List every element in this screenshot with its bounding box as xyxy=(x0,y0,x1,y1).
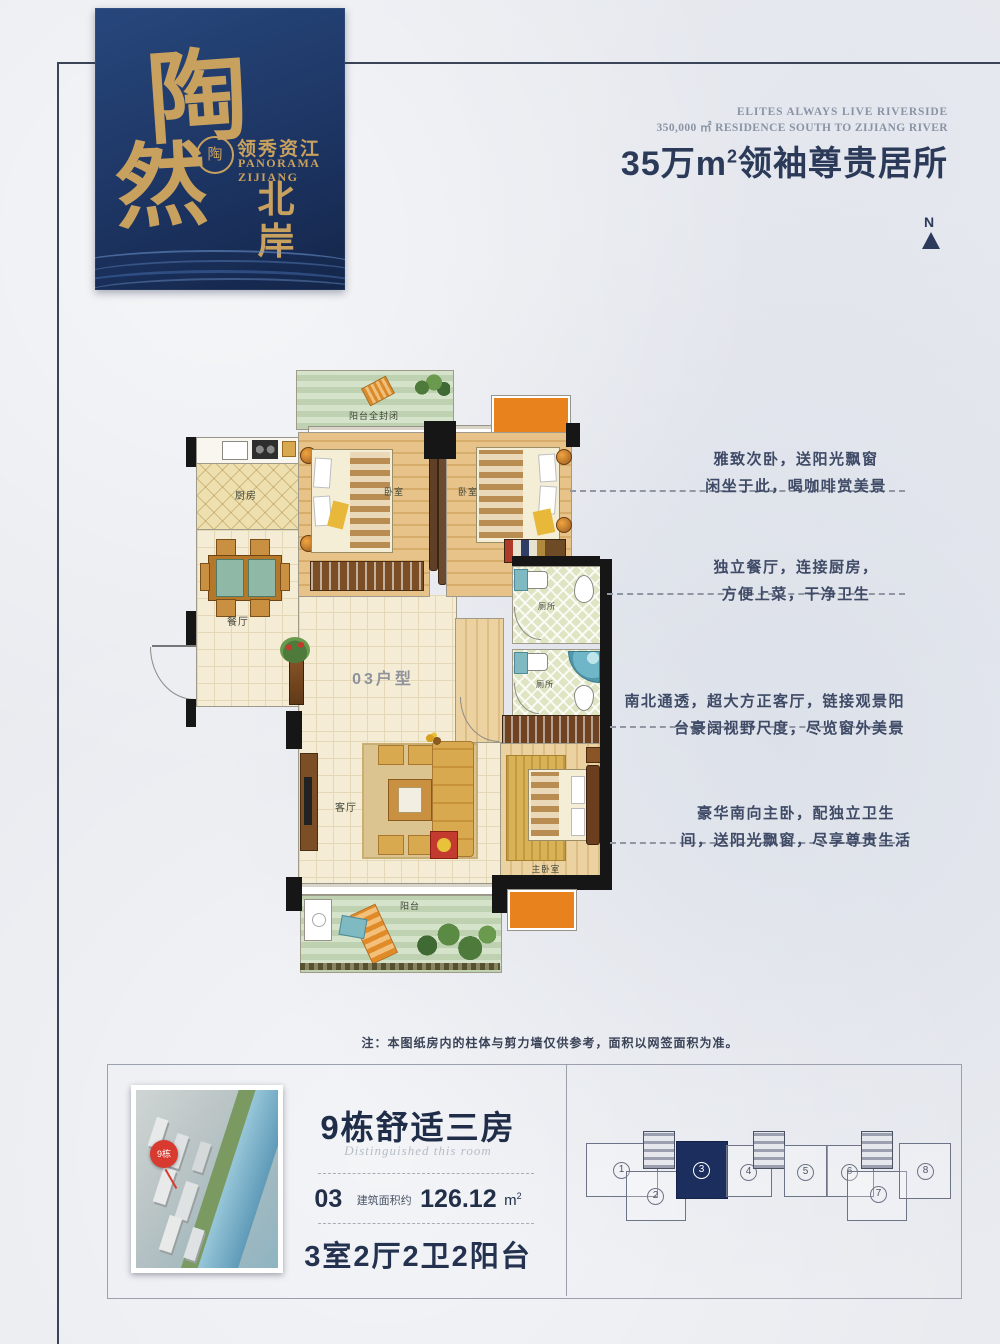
entry-door-arc xyxy=(150,647,195,700)
annotation-3: 南北通透，超大方正客厅，链接观景阳 台豪阔视野尺度，尽览窗外美景 xyxy=(600,688,905,742)
keyplan-core xyxy=(753,1131,785,1169)
keyplan-unit-7: 7 xyxy=(847,1171,907,1221)
coffee-table-icon xyxy=(388,779,432,821)
keyplan-unit-5-number: 5 xyxy=(797,1164,814,1181)
side-table-icon xyxy=(430,831,458,859)
kitchen-item-icon xyxy=(282,441,296,457)
logo-wave-decoration xyxy=(95,244,345,290)
bath1-towel-icon xyxy=(514,569,528,591)
aerial-building xyxy=(174,1181,198,1221)
wall-chunk xyxy=(186,437,196,467)
footer-layout-text: 3室2厅2卫2阳台 xyxy=(288,1233,548,1275)
footer-script-text: Distinguished this room xyxy=(298,1143,538,1159)
room-label-balcony-top: 阳台全封闭 xyxy=(316,409,432,422)
nightstand-icon xyxy=(556,517,572,533)
keyplan-unit-8-number: 8 xyxy=(917,1163,934,1180)
frame-left-line xyxy=(57,62,59,1344)
balcony-top-plant-icon xyxy=(410,372,450,398)
footer-area-label: 建筑面积约 xyxy=(357,1195,412,1207)
logo-seal-char: 陶 xyxy=(207,146,222,163)
keyplan-unit-2-number: 2 xyxy=(647,1188,664,1205)
footer-area-unit-sup: 2 xyxy=(517,1191,522,1201)
logo-brand-en1: PANORAMA xyxy=(238,156,320,171)
footer-title: 9栋舒适三房 xyxy=(298,1101,538,1149)
annotation-1-line1: 雅致次卧，送阳光飘窗 xyxy=(640,446,952,473)
dining-placemat-icon xyxy=(216,559,244,597)
room-label-bedroom1: 卧室 xyxy=(376,485,412,498)
bath1-toilet-icon xyxy=(574,575,594,603)
wall-chunk xyxy=(424,421,456,459)
master-headboard-icon xyxy=(586,765,600,845)
header-en-line2: 350,000 ㎡ RESIDENCE SOUTH TO ZIJIANG RIV… xyxy=(540,119,948,135)
armchair-icon xyxy=(378,835,404,855)
wall-master-bottom xyxy=(500,875,612,890)
brand-logo-card: 陶 然 陶 领秀资江 PANORAMA ZIJIANG 北 岸 xyxy=(95,8,345,290)
keyplan-unit-3-number: 3 xyxy=(693,1162,710,1179)
window-living-balcony xyxy=(300,883,494,895)
bed1-icon xyxy=(311,449,393,553)
towel-icon xyxy=(338,915,367,939)
header-en-line1: ELITES ALWAYS LIVE RIVERSIDE xyxy=(540,106,948,118)
north-arrow-icon xyxy=(922,232,940,249)
logo-vertical-char-top: 北 xyxy=(253,180,299,222)
keyplan-unit-3-highlighted: 3 xyxy=(676,1141,728,1199)
sliding-door-icon xyxy=(429,441,438,571)
wall-chunk xyxy=(286,711,302,749)
footer-divider-vertical xyxy=(566,1065,567,1296)
annotation-2: 独立餐厅，连接厨房， 方便上菜，干净卫生 xyxy=(640,554,952,608)
footer-divider-dashed-2 xyxy=(318,1223,534,1224)
annotation-2-line2: 方便上菜，干净卫生 xyxy=(640,581,952,608)
floorplan: 阳台全封闭 厨房 餐厅 03户型 卧室 xyxy=(148,363,620,978)
room-label-balcony-bottom: 阳台 xyxy=(392,899,428,912)
flowers-icon xyxy=(424,731,444,749)
aerial-building xyxy=(153,1167,176,1205)
room-label-bedroom2: 卧室 xyxy=(450,485,486,498)
location-pin-label: 9栋 xyxy=(157,1149,171,1159)
headline-sup: 2 xyxy=(727,147,738,167)
dining-placemat-icon xyxy=(248,559,276,597)
room-label-living: 客厅 xyxy=(326,799,366,814)
room-label-dining: 餐厅 xyxy=(208,613,268,628)
unit-type-label: 03户型 xyxy=(338,665,428,689)
disclaimer-note: 注：本图纸房内的柱体与剪力墙仅供参考，面积以网签面积为准。 xyxy=(310,1034,790,1051)
wall-chunk xyxy=(286,877,302,911)
annotation-4-line2: 间，送阳光飘窗，尽享尊贵生活 xyxy=(640,827,952,854)
nightstand-icon xyxy=(556,449,572,465)
tv-icon xyxy=(304,777,312,825)
aerial-building xyxy=(159,1215,182,1253)
keyplan-unit-7-number: 7 xyxy=(870,1186,887,1203)
footer-box: 9栋 9栋舒适三房 Distinguished this room 03 建筑面… xyxy=(107,1064,962,1299)
master-bed-icon xyxy=(528,769,588,841)
kitchen-sink-icon xyxy=(222,441,248,460)
bath1-top-wall xyxy=(512,556,600,566)
wall-chunk xyxy=(566,423,580,447)
dining-chair-icon xyxy=(280,563,290,591)
room-label-master: 主卧室 xyxy=(516,863,576,875)
master-sidetable-icon xyxy=(586,747,601,763)
washer-icon xyxy=(304,899,332,941)
bed2-icon xyxy=(476,447,560,543)
logo-seal-icon: 陶 xyxy=(196,136,234,174)
logo-calligraphy-char2: 然 xyxy=(112,110,211,248)
header-en-lines: ELITES ALWAYS LIVE RIVERSIDE 350,000 ㎡ R… xyxy=(540,106,948,135)
footer-divider-dashed-1 xyxy=(318,1173,534,1174)
annotation-4-line1: 豪华南向主卧，配独立卫生 xyxy=(640,800,952,827)
aerial-building xyxy=(192,1141,212,1173)
keyplan-core xyxy=(861,1131,893,1169)
poster-page: { "page": { "background": "#e9ebf0", "fr… xyxy=(0,0,1000,1344)
footer-area-unit: m xyxy=(504,1192,517,1209)
balcony-plants-icon xyxy=(410,913,496,967)
annotation-2-line1: 独立餐厅，连接厨房， xyxy=(640,554,952,581)
annotation-3-line2: 台豪阔视野尺度，尽览窗外美景 xyxy=(600,715,905,742)
location-pin: 9栋 xyxy=(150,1140,178,1168)
dining-chair-icon xyxy=(200,563,210,591)
bay-window-bottom xyxy=(508,890,576,930)
keyplan: 1 2 3 4 5 6 7 8 xyxy=(581,1129,953,1229)
headline-main: 35万m xyxy=(621,145,727,183)
room-label-kitchen: 厨房 xyxy=(216,487,276,502)
wall-chunk xyxy=(186,699,196,727)
headline: 35万m2领袖尊贵居所 xyxy=(520,136,948,185)
footer-unit-no: 03 xyxy=(314,1185,342,1213)
keyplan-unit-8: 8 xyxy=(899,1143,951,1199)
plant-icon xyxy=(280,637,310,663)
wardrobe1-icon xyxy=(310,561,424,591)
footer-area-line: 03 建筑面积约 126.12 m2 xyxy=(298,1185,538,1214)
north-label: N xyxy=(924,214,935,230)
annotation-4: 豪华南向主卧，配独立卫生 间，送阳光飘窗，尽享尊贵生活 xyxy=(640,800,952,854)
footer-area-value: 126.12 xyxy=(420,1185,496,1213)
balcony-railing xyxy=(300,963,500,970)
annotation-1: 雅致次卧，送阳光飘窗 闲坐于此，喝咖啡赏美景 xyxy=(640,446,952,500)
aerial-photo-card: 9栋 xyxy=(131,1085,283,1273)
annotation-3-line1: 南北通透，超大方正客厅，链接观景阳 xyxy=(600,688,905,715)
armchair-icon xyxy=(378,745,404,765)
bath2-towel-icon xyxy=(514,652,528,674)
wall-chunk xyxy=(186,611,196,645)
master-wardrobe-icon xyxy=(502,715,602,745)
kitchen-stove-icon xyxy=(252,440,278,459)
annotation-1-line2: 闲坐于此，喝咖啡赏美景 xyxy=(640,473,952,500)
headline-rest: 领袖尊贵居所 xyxy=(738,145,948,183)
keyplan-core xyxy=(643,1131,675,1169)
keyplan-unit-5: 5 xyxy=(784,1145,828,1197)
